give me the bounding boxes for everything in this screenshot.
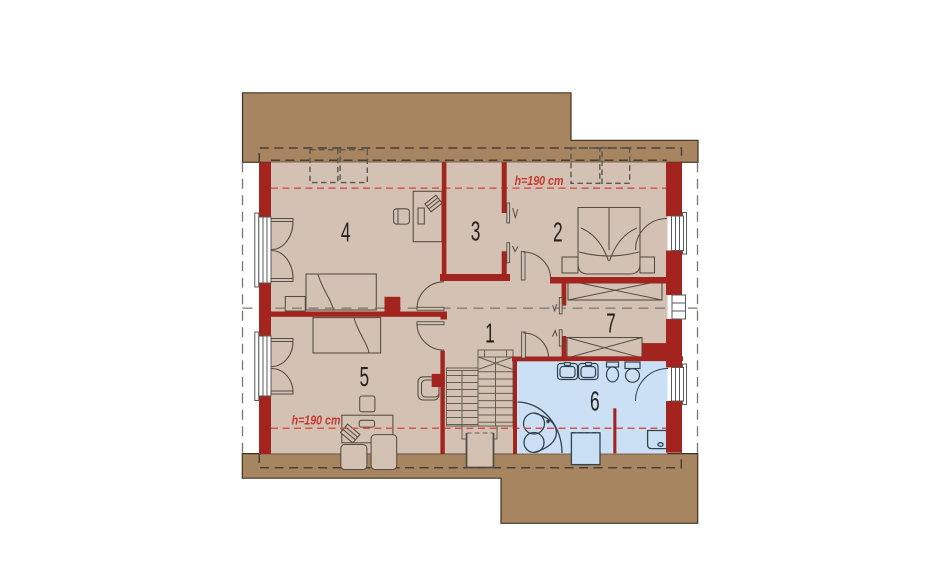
svg-text:5: 5: [359, 361, 369, 392]
svg-text:h=190 cm: h=190 cm: [292, 412, 341, 427]
svg-text:7: 7: [606, 307, 616, 338]
svg-text:2: 2: [553, 216, 563, 247]
svg-text:1: 1: [485, 317, 495, 348]
svg-text:h=190 cm: h=190 cm: [515, 173, 564, 188]
svg-text:6: 6: [590, 385, 600, 416]
svg-text:4: 4: [341, 216, 351, 247]
svg-text:3: 3: [471, 215, 481, 246]
